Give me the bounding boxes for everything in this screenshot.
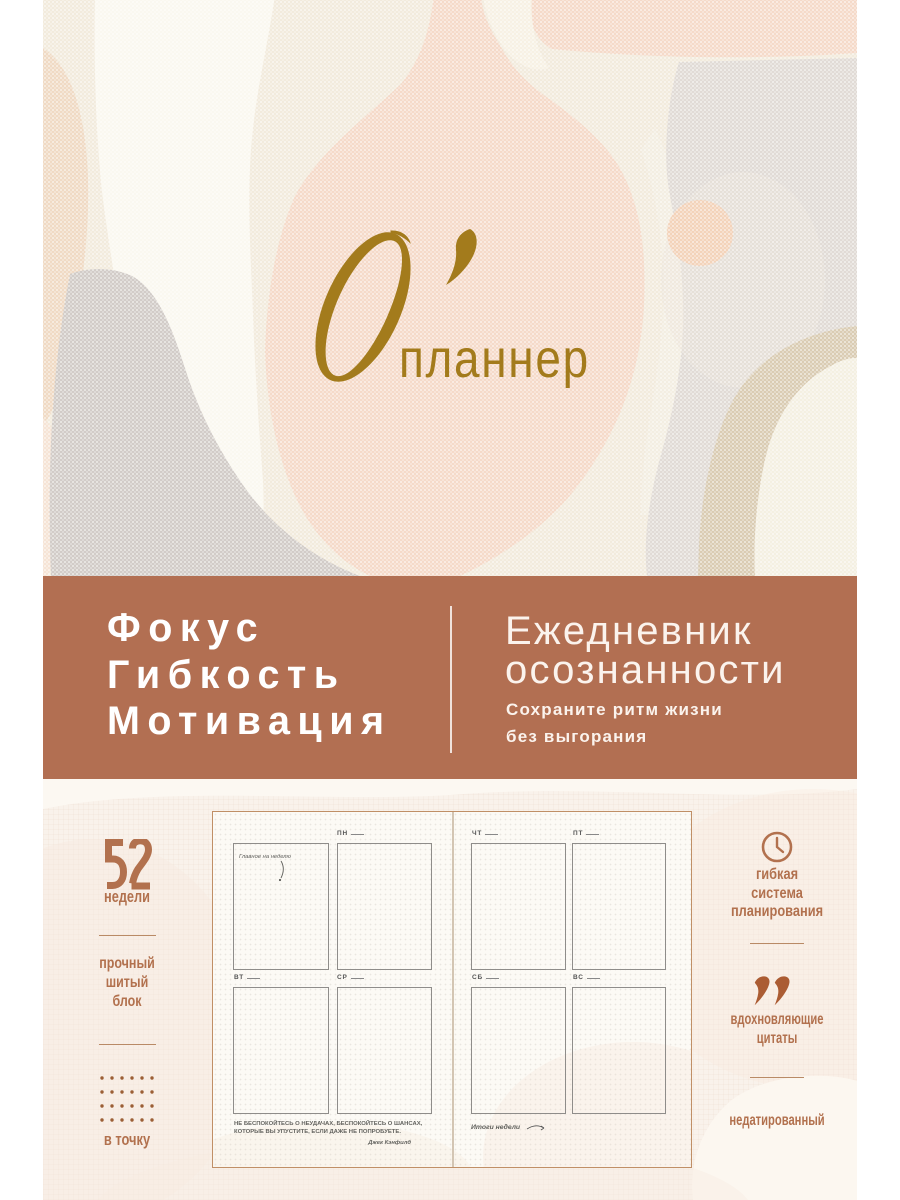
svg-text:Итоги недели: Итоги недели	[471, 1123, 521, 1131]
svg-text:Главное на неделю: Главное на неделю	[239, 854, 292, 860]
svg-text:планнер: планнер	[399, 329, 590, 389]
